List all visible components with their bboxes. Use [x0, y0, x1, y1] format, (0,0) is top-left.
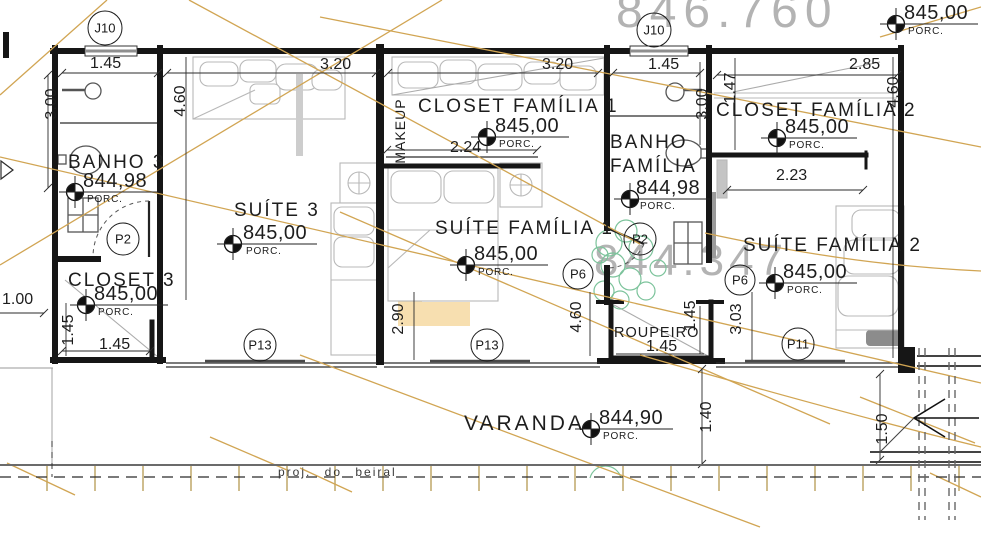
finish-closet-familia1: PORC. — [499, 139, 535, 150]
finish-closet3: PORC. — [98, 307, 134, 318]
door-tag-p2-banho3: P2 — [107, 223, 140, 256]
door-tag-p11-suite-familia2: P11 — [782, 328, 815, 361]
elevation-closet-familia1: 845,00 — [495, 115, 559, 138]
dim-left-offset: 1.00 — [2, 291, 33, 309]
dim-closet3-depth: 1.45 — [60, 314, 78, 345]
dim-right-depth: 4.60 — [885, 76, 903, 107]
finish-exterior: PORC. — [908, 26, 944, 37]
elevation-banho3: 844,98 — [83, 170, 147, 193]
dim-suite-familia1-right: 4.60 — [568, 301, 586, 332]
door-tag-p6-right: P6 — [725, 265, 756, 296]
dim-suite-familia2-left: 3.03 — [728, 303, 746, 334]
room-label-banho-familia: BANHO FAMÍLIA — [610, 131, 714, 179]
dim-banho3-width: 1.45 — [90, 55, 121, 73]
window-tag-j10-right: J10 — [637, 13, 672, 48]
elevation-varanda: 844,90 — [599, 407, 663, 430]
finish-closet-familia2: PORC. — [789, 140, 825, 151]
makeup-counter-label: MAKEUP — [392, 98, 408, 163]
dim-roupeiro-depth: 1.45 — [682, 300, 700, 331]
room-label-suite-familia1: SUÍTE FAMÍLIA 1 — [435, 218, 614, 240]
room-label-varanda: VARANDA — [464, 412, 585, 436]
elevation-suite-familia2: 845,00 — [783, 261, 847, 284]
door-tag-p6-left: P6 — [563, 259, 594, 290]
dim-closet-familia2-left: 1.47 — [722, 72, 740, 103]
door-tag-p13-suite3: P13 — [244, 329, 277, 362]
room-label-suite3: SUÍTE 3 — [234, 200, 320, 222]
finish-banho-familia: PORC. — [640, 201, 676, 212]
door-tag-p2-banho-familia: P2 — [624, 223, 657, 256]
dim-suite-familia1-left: 2.90 — [390, 303, 408, 334]
elevation-exterior: 845,00 — [904, 2, 968, 25]
elevation-closet3: 845,00 — [94, 283, 158, 306]
dim-closet-familia2-width: 2.85 — [849, 56, 880, 74]
finish-suite-familia1: PORC. — [478, 267, 514, 278]
dim-closet3-width: 1.45 — [99, 336, 130, 354]
elevation-suite3: 845,00 — [243, 222, 307, 245]
dim-right-varanda-depth: 1.50 — [874, 413, 892, 444]
finish-suite-familia2: PORC. — [787, 285, 823, 296]
dim-suite3-depth: 4.60 — [172, 85, 190, 116]
dim-roupeiro-width: 1.45 — [646, 338, 677, 356]
window-tag-j10-left: J10 — [88, 11, 123, 46]
elevation-suite-familia1: 845,00 — [474, 243, 538, 266]
finish-varanda: PORC. — [603, 431, 639, 442]
dim-banho3-depth: 3.00 — [43, 88, 61, 119]
elevation-closet-familia2: 845,00 — [785, 116, 849, 139]
dim-closet-familia2-counter: 2.23 — [776, 167, 807, 185]
finish-suite3: PORC. — [246, 246, 282, 257]
eave-projection-label: proj. do beiral — [278, 465, 397, 479]
dim-closet-familia1-counter: 2.24 — [450, 139, 481, 157]
elevation-banho-familia: 844,98 — [636, 177, 700, 200]
dim-banho-familia-width: 1.45 — [648, 56, 679, 74]
finish-banho3: PORC. — [87, 194, 123, 205]
dim-closet-familia1-width: 3.20 — [542, 56, 573, 74]
dim-varanda-depth: 1.40 — [698, 401, 716, 432]
room-label-suite-familia2: SUÍTE FAMÍLIA 2 — [743, 235, 922, 257]
dim-banho-familia-depth: 3.00 — [694, 88, 712, 119]
dim-suite3-width: 3.20 — [320, 56, 351, 74]
floor-plan: 846.760 844.347 — [0, 0, 981, 556]
door-tag-p13-suite-familia1: P13 — [471, 329, 504, 362]
